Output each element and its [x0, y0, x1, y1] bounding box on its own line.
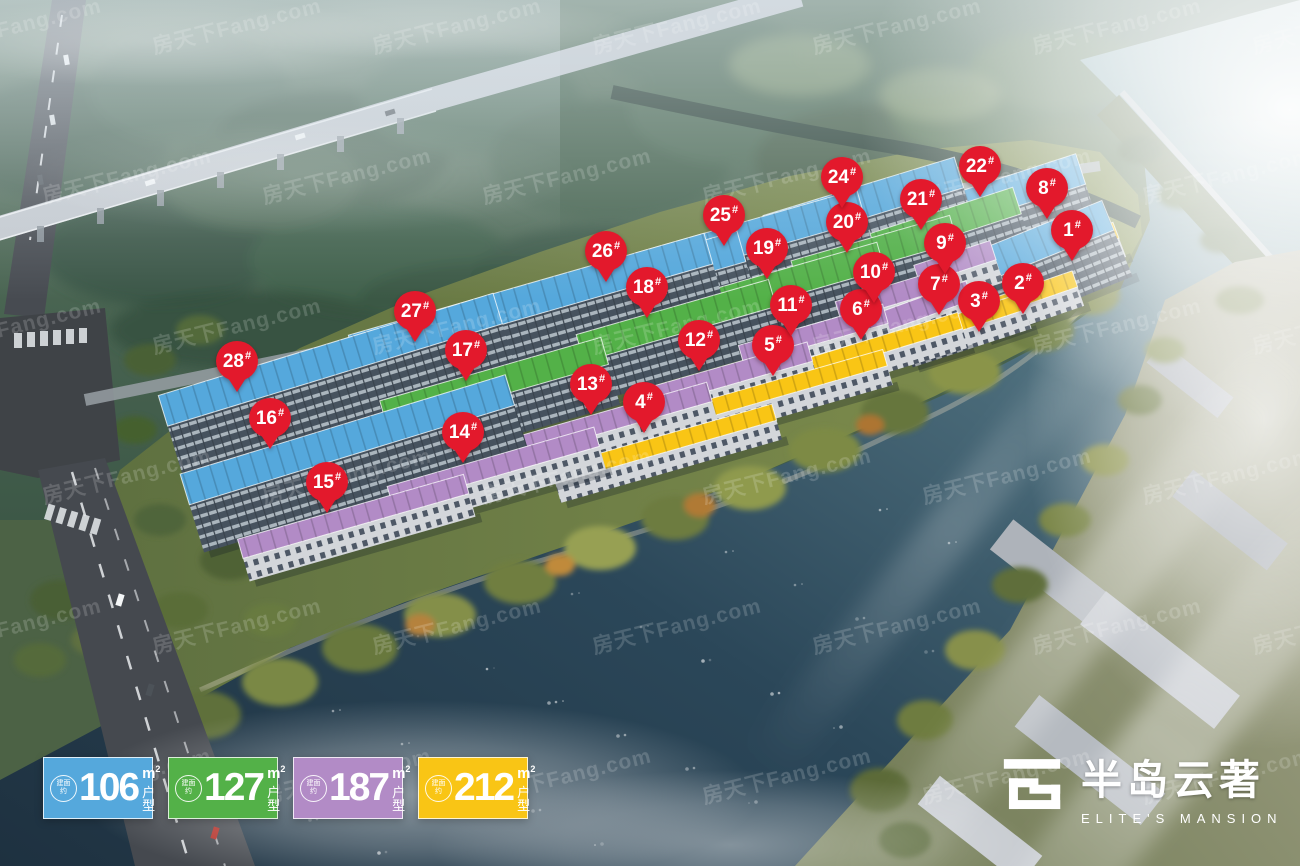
marker-suffix: #	[775, 238, 781, 249]
marker-number: 26	[592, 242, 613, 261]
marker-suffix: #	[647, 392, 653, 403]
building-marker-3: 3#	[958, 281, 1000, 321]
marker-suffix: #	[655, 277, 661, 288]
marker-number: 3	[970, 292, 981, 311]
marker-suffix: #	[245, 351, 251, 362]
building-marker-9: 9#	[924, 223, 966, 263]
legend-badge-icon: 建面约	[50, 775, 77, 802]
marker-suffix: #	[855, 212, 861, 223]
marker-suffix: #	[1026, 273, 1032, 284]
marker-number: 20	[833, 213, 854, 232]
building-marker-26: 26#	[585, 231, 627, 271]
marker-number: 16	[256, 409, 277, 428]
marker-number: 9	[936, 234, 947, 253]
marker-number: 4	[635, 393, 646, 412]
marker-suffix: #	[882, 262, 888, 273]
legend-item-187: 建面约187m2户型	[293, 757, 403, 819]
marker-number: 6	[852, 300, 863, 319]
marker-suffix: #	[732, 205, 738, 216]
marker-suffix: #	[776, 335, 782, 346]
marker-suffix: #	[942, 274, 948, 285]
building-marker-13: 13#	[570, 364, 612, 404]
marker-suffix: #	[474, 340, 480, 351]
marker-suffix: #	[335, 472, 341, 483]
marker-number: 10	[860, 263, 881, 282]
marker-number: 2	[1014, 274, 1025, 293]
building-marker-28: 28#	[216, 341, 258, 381]
project-logo-text: 半岛云著 ELITE'S MANSION	[1081, 746, 1283, 826]
marker-number: 19	[753, 239, 774, 258]
building-marker-12: 12#	[678, 320, 720, 360]
marker-number: 28	[223, 352, 244, 371]
marker-number: 21	[907, 190, 928, 209]
marker-number: 22	[966, 157, 987, 176]
marker-suffix: #	[423, 301, 429, 312]
aerial-site-plan: 房天下Fang.com房天下Fang.com房天下Fang.com房天下Fang…	[0, 0, 1300, 866]
marker-suffix: #	[599, 374, 605, 385]
legend-badge-icon: 建面约	[425, 775, 452, 802]
building-marker-10: 10#	[853, 252, 895, 292]
logo-mark-icon	[1000, 754, 1064, 818]
building-marker-4: 4#	[623, 382, 665, 422]
marker-number: 5	[764, 336, 775, 355]
building-marker-20: 20#	[826, 202, 868, 242]
building-marker-16: 16#	[249, 398, 291, 438]
legend-area-value: 106	[79, 766, 138, 810]
marker-suffix: #	[614, 241, 620, 252]
building-marker-17: 17#	[445, 330, 487, 370]
unit-type-legend: 建面约106m2户型建面约127m2户型建面约187m2户型建面约212m2户型	[43, 757, 528, 819]
marker-suffix: #	[798, 295, 804, 306]
marker-suffix: #	[1075, 220, 1081, 231]
legend-item-127: 建面约127m2户型	[168, 757, 278, 819]
building-marker-24: 24#	[821, 157, 863, 197]
building-marker-14: 14#	[442, 412, 484, 452]
marker-suffix: #	[929, 189, 935, 200]
building-marker-22: 22#	[959, 146, 1001, 186]
marker-suffix: #	[850, 167, 856, 178]
legend-unit-label: m2户型	[267, 765, 285, 812]
building-marker-1: 1#	[1051, 210, 1093, 250]
project-logo: 半岛云著 ELITE'S MANSION	[1000, 746, 1283, 826]
marker-suffix: #	[471, 422, 477, 433]
building-marker-15: 15#	[306, 462, 348, 502]
building-marker-19: 19#	[746, 228, 788, 268]
legend-item-212: 建面约212m2户型	[418, 757, 528, 819]
building-marker-25: 25#	[703, 195, 745, 235]
marker-number: 14	[449, 423, 470, 442]
marker-suffix: #	[707, 330, 713, 341]
site-rendering	[0, 0, 1300, 866]
marker-suffix: #	[982, 291, 988, 302]
building-marker-27: 27#	[394, 291, 436, 331]
project-name-cn: 半岛云著	[1081, 746, 1283, 806]
building-marker-8: 8#	[1026, 168, 1068, 208]
building-marker-21: 21#	[900, 179, 942, 219]
legend-unit-label: m2户型	[392, 765, 410, 812]
marker-number: 11	[777, 296, 797, 315]
legend-area-value: 212	[454, 766, 513, 810]
legend-unit-label: m2户型	[517, 765, 535, 812]
legend-unit-label: m2户型	[142, 765, 160, 812]
marker-number: 13	[577, 375, 598, 394]
marker-number: 8	[1038, 179, 1049, 198]
legend-badge-icon: 建面约	[300, 775, 327, 802]
marker-number: 1	[1063, 221, 1074, 240]
legend-area-value: 127	[204, 766, 263, 810]
marker-suffix: #	[1050, 178, 1056, 189]
marker-number: 24	[828, 168, 849, 187]
building-marker-11: 11#	[770, 285, 812, 325]
marker-number: 27	[401, 302, 422, 321]
legend-item-106: 建面约106m2户型	[43, 757, 153, 819]
building-marker-18: 18#	[626, 267, 668, 307]
legend-badge-icon: 建面约	[175, 775, 202, 802]
legend-area-value: 187	[329, 766, 388, 810]
marker-suffix: #	[278, 408, 284, 419]
marker-number: 12	[685, 331, 706, 350]
marker-number: 15	[313, 473, 334, 492]
marker-number: 25	[710, 206, 731, 225]
marker-suffix: #	[948, 233, 954, 244]
marker-number: 17	[452, 341, 473, 360]
building-marker-2: 2#	[1002, 263, 1044, 303]
marker-number: 7	[930, 275, 941, 294]
marker-number: 18	[633, 278, 654, 297]
project-name-en: ELITE'S MANSION	[1081, 811, 1283, 826]
marker-suffix: #	[988, 156, 994, 167]
